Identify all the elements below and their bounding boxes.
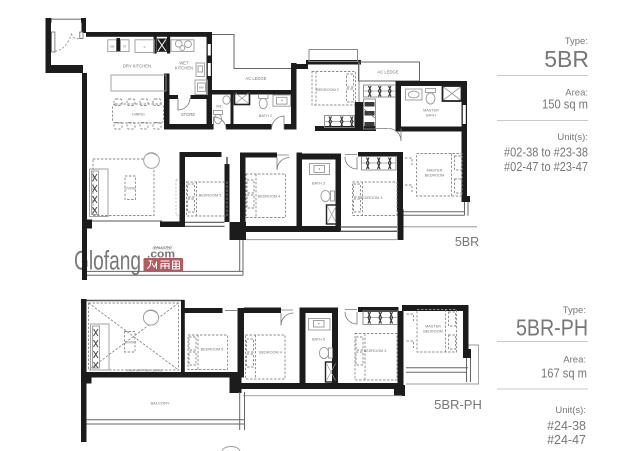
svg-text:KITCHEN: KITCHEN bbox=[175, 66, 193, 71]
svg-text:BEDROOM: BEDROOM bbox=[425, 174, 445, 178]
svg-text:BEDROOM: BEDROOM bbox=[423, 330, 443, 334]
svg-text:WC: WC bbox=[216, 104, 223, 109]
svg-text:F: F bbox=[144, 45, 146, 49]
svg-text:5BR-PH: 5BR-PH bbox=[516, 315, 588, 341]
svg-text:BEDROOM 5: BEDROOM 5 bbox=[201, 348, 224, 352]
svg-text:BALCONY: BALCONY bbox=[153, 245, 172, 250]
svg-text:5BR-PH: 5BR-PH bbox=[434, 397, 482, 412]
svg-text:#02-38 to #23-38: #02-38 to #23-38 bbox=[504, 146, 588, 160]
svg-text:BEDROOM 3: BEDROOM 3 bbox=[364, 349, 387, 353]
svg-text:AC LEDGE: AC LEDGE bbox=[377, 70, 398, 75]
svg-text:BALCONY: BALCONY bbox=[150, 401, 169, 406]
svg-text:Area:: Area: bbox=[563, 355, 586, 366]
svg-text:Unit(s):: Unit(s): bbox=[557, 132, 588, 143]
svg-text:DRY KITCHEN: DRY KITCHEN bbox=[123, 64, 151, 69]
svg-text:BEDROOM 4: BEDROOM 4 bbox=[259, 351, 282, 355]
svg-text:WM: WM bbox=[199, 86, 204, 90]
svg-text:STORE: STORE bbox=[181, 112, 196, 117]
svg-text:BEDROOM 2: BEDROOM 2 bbox=[316, 88, 339, 92]
svg-text:AC LEDGE: AC LEDGE bbox=[245, 76, 266, 81]
svg-text:LIVING: LIVING bbox=[124, 187, 135, 191]
svg-text:BEDROOM 4: BEDROOM 4 bbox=[258, 195, 281, 199]
svg-text:MASTER: MASTER bbox=[425, 325, 441, 329]
svg-text:BATH: BATH bbox=[426, 114, 436, 118]
svg-text:(Void with high ceiling): (Void with high ceiling) bbox=[127, 369, 163, 373]
svg-text:167 sq m: 167 sq m bbox=[541, 367, 587, 381]
svg-text:MASTER: MASTER bbox=[423, 109, 439, 113]
svg-text:Unit(s):: Unit(s): bbox=[555, 405, 586, 416]
svg-text:BATH 5: BATH 5 bbox=[312, 338, 325, 342]
svg-text:BEDROOM 3: BEDROOM 3 bbox=[360, 196, 383, 200]
svg-text:#02-47 to #23-47: #02-47 to #23-47 bbox=[504, 160, 588, 174]
svg-text:#24-38: #24-38 bbox=[547, 419, 586, 433]
svg-text:BATH 2: BATH 2 bbox=[259, 113, 273, 118]
svg-text:BEDROOM 5: BEDROOM 5 bbox=[199, 194, 222, 198]
svg-text:5BR: 5BR bbox=[544, 46, 589, 72]
svg-text:ST: ST bbox=[123, 45, 127, 49]
svg-text:5BR: 5BR bbox=[455, 235, 479, 249]
svg-text:LIVING: LIVING bbox=[125, 341, 136, 345]
svg-text:#24-47: #24-47 bbox=[547, 433, 586, 447]
svg-text:BATH 3: BATH 3 bbox=[312, 182, 325, 186]
svg-text:150 sq m: 150 sq m bbox=[542, 98, 588, 112]
svg-text:DINING: DINING bbox=[132, 112, 145, 116]
svg-text:DB: DB bbox=[110, 45, 114, 49]
svg-text:MASTER: MASTER bbox=[427, 169, 443, 173]
